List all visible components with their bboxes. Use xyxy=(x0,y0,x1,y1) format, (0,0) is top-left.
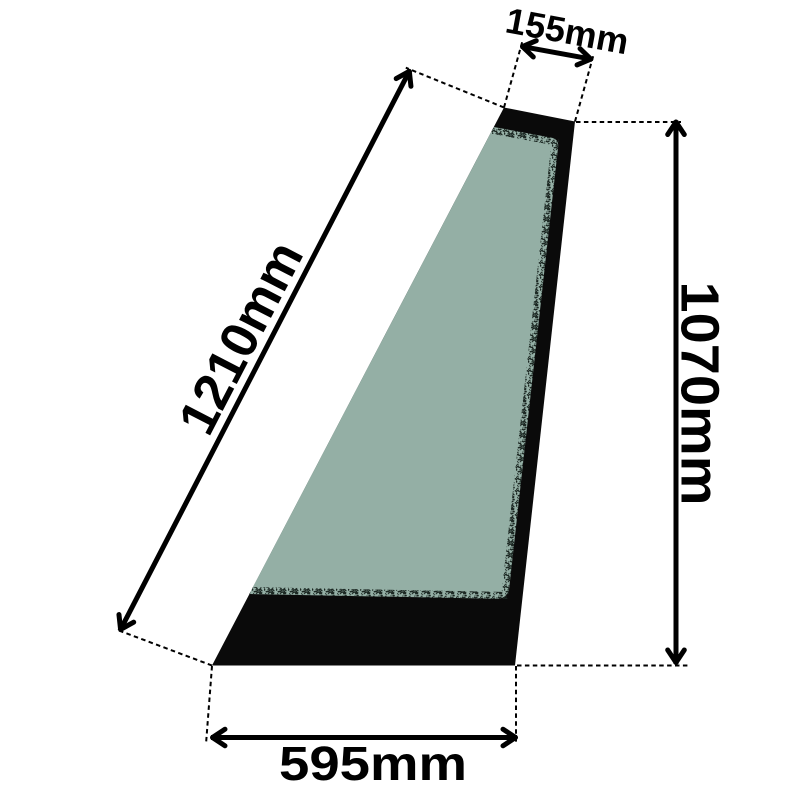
svg-text:1070mm: 1070mm xyxy=(670,282,730,506)
svg-text:595mm: 595mm xyxy=(279,738,467,791)
